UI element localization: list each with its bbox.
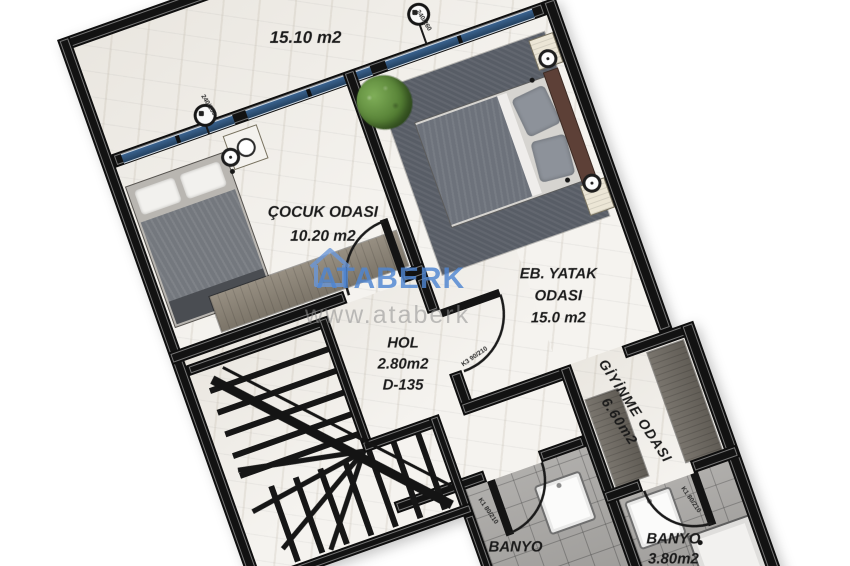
watermark-brand: ATABERK	[316, 262, 465, 296]
master-room-label: EB. YATAK ODASI 15.0 m2	[520, 263, 597, 329]
room-name: EB. YATAK	[520, 263, 597, 285]
child-room-label: ÇOCUK ODASI 10.20 m2	[268, 201, 378, 249]
room-name: ODASI	[520, 285, 597, 307]
balcony-area-label: 15.10 m2	[270, 28, 342, 48]
room-name: BANYO	[646, 529, 700, 549]
room-area: 15.0 m2	[520, 307, 597, 329]
floorplan-image: 240/260 240/260 K3 90/210 K1 80/210 K1 8…	[0, 0, 850, 566]
bathroom-left-label: BANYO	[488, 539, 542, 556]
watermark-url: www.ataberk	[305, 301, 470, 330]
room-area: 3.80m2	[646, 549, 700, 566]
room-name: HOL	[378, 333, 429, 354]
bathroom-right-label: BANYO 3.80m2	[646, 529, 700, 566]
room-code: D-135	[378, 375, 429, 396]
room-area: 2.80m2	[378, 354, 429, 375]
hall-label: HOL 2.80m2 D-135	[378, 333, 429, 396]
room-name: ÇOCUK ODASI	[268, 201, 378, 225]
